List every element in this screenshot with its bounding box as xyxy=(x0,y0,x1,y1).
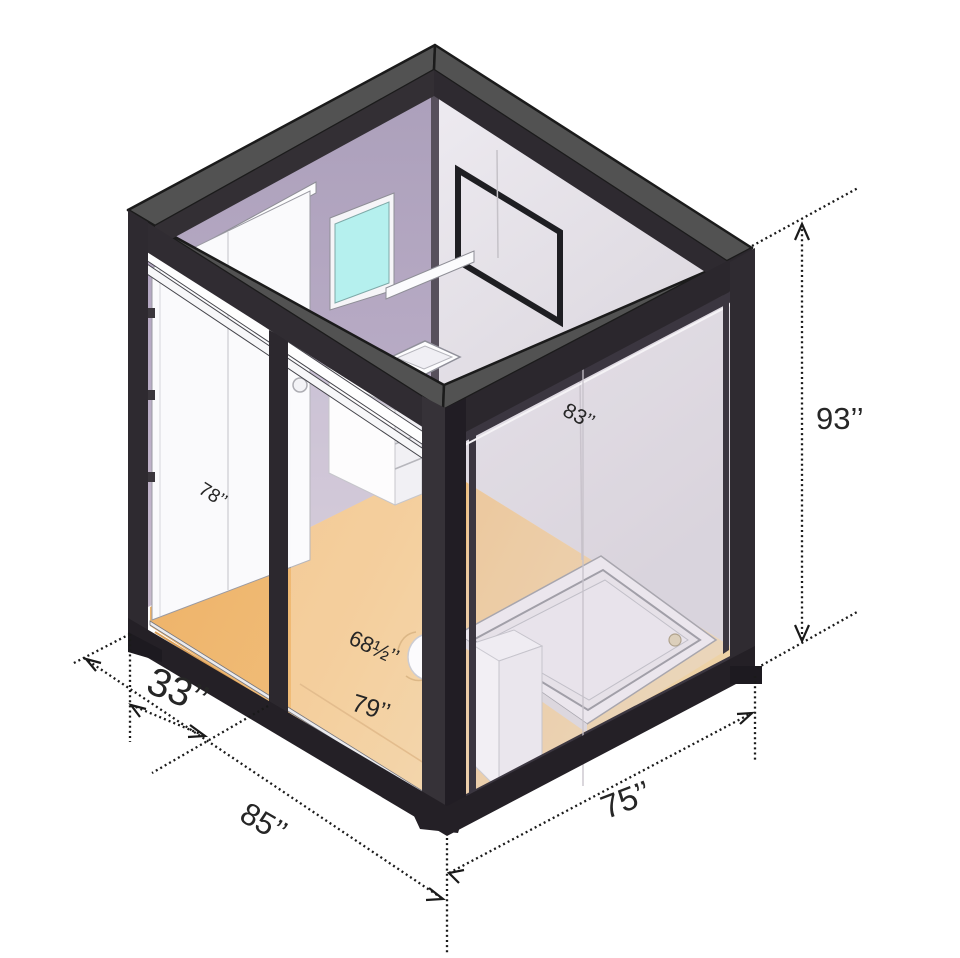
svg-text:93’’: 93’’ xyxy=(816,401,864,436)
